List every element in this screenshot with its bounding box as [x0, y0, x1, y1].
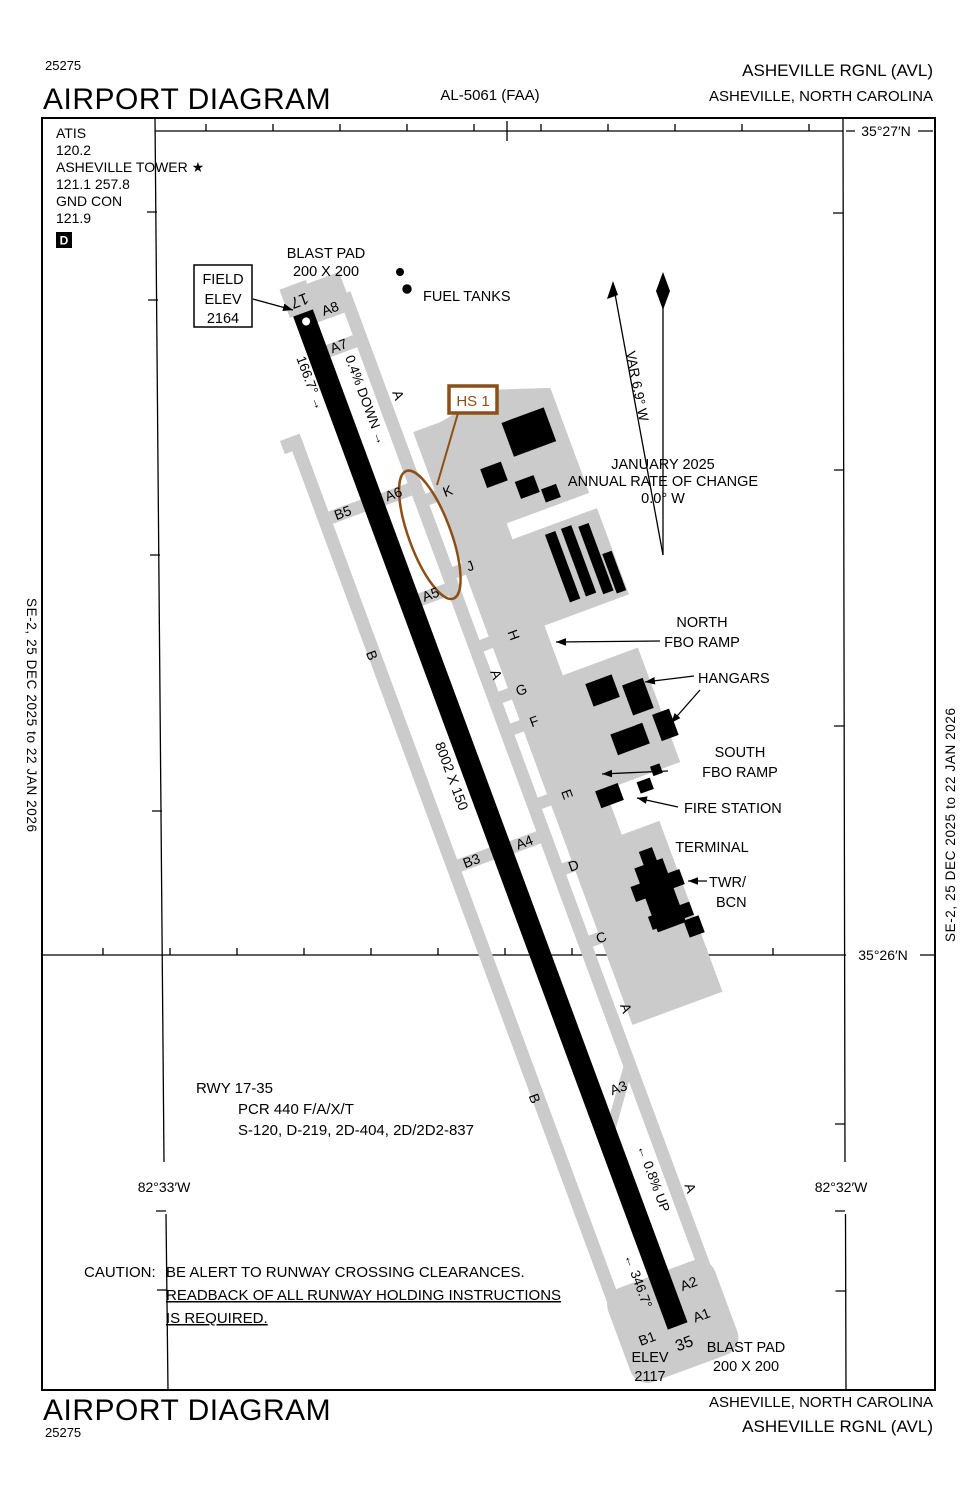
field-elev-line2: ELEV — [204, 292, 241, 308]
airport-city-top: ASHEVILLE, NORTH CAROLINA — [709, 88, 933, 105]
atis-freq: 120.2 — [56, 142, 91, 158]
field-elev-line1: FIELD — [202, 272, 243, 288]
airport-name-bottom: ASHEVILLE RGNL (AVL) — [742, 1417, 933, 1436]
lat-label-top: 35°27′N — [861, 123, 910, 139]
rwy-data-strength: S-120, D-219, 2D-404, 2D/2D2-837 — [238, 1122, 474, 1139]
lon-label-east: 82°32′W — [815, 1179, 868, 1195]
fuel-tanks-label: FUEL TANKS — [423, 289, 511, 305]
atis-label: ATIS — [56, 125, 86, 141]
north-fbo-label-1: NORTH — [676, 615, 727, 631]
twr-bcn-label-1: TWR/ — [709, 875, 747, 891]
hotspot-label: HS 1 — [456, 393, 489, 410]
airport-diagram-page: 25275 AIRPORT DIAGRAM AL-5061 (FAA) ASHE… — [0, 0, 978, 1500]
magvar-rate-value: 0.0° W — [641, 491, 685, 507]
rwy-data-pcr: PCR 440 F/A/X/T — [238, 1101, 354, 1118]
blast-pad-north-label-2: 200 X 200 — [293, 264, 359, 280]
terminal-label: TERMINAL — [675, 840, 748, 856]
tower-freq: 121.1 257.8 — [56, 176, 130, 192]
south-fbo-label-1: SOUTH — [715, 745, 766, 761]
chart-code-top: 25275 — [45, 58, 81, 73]
field-elev-value: 2164 — [207, 311, 239, 327]
airport-city-bottom: ASHEVILLE, NORTH CAROLINA — [709, 1394, 933, 1411]
hangars-label: HANGARS — [698, 671, 770, 687]
blast-pad-south-label-1: BLAST PAD — [707, 1340, 785, 1356]
diagram-canvas: 25275 AIRPORT DIAGRAM AL-5061 (FAA) ASHE… — [0, 0, 978, 1500]
datis-letter: D — [60, 234, 69, 248]
effective-date-right: SE-2, 25 DEC 2025 to 22 JAN 2026 — [943, 707, 958, 942]
chart-frame: 35°27′N 35°26′N 82°33′W 82°32′W — [42, 118, 935, 1390]
twr-bcn-label-2: BCN — [716, 895, 747, 911]
effective-date-left: SE-2, 25 DEC 2025 to 22 JAN 2026 — [24, 598, 39, 833]
north-fbo-label-2: FBO RAMP — [664, 635, 740, 651]
magvar-date: JANUARY 2025 — [611, 457, 714, 473]
footer: AIRPORT DIAGRAM 25275 ASHEVILLE, NORTH C… — [43, 1394, 933, 1440]
lat-label-mid: 35°26′N — [858, 947, 907, 963]
blast-pad-south-label-2: 200 X 200 — [713, 1359, 779, 1375]
caution-label: CAUTION: — [84, 1264, 156, 1281]
ground-freq: 121.9 — [56, 210, 91, 226]
tower-label: ASHEVILLE TOWER ★ — [56, 159, 204, 175]
header: 25275 AIRPORT DIAGRAM AL-5061 (FAA) ASHE… — [43, 58, 933, 116]
procedure-number: AL-5061 (FAA) — [440, 87, 539, 104]
map-border — [42, 118, 935, 1390]
fire-station-label: FIRE STATION — [684, 801, 782, 817]
rwy-data-title: RWY 17-35 — [196, 1080, 273, 1097]
fuel-tank-icon — [402, 284, 411, 293]
elev-35-value: 2117 — [634, 1369, 665, 1385]
caution-line-1: BE ALERT TO RUNWAY CROSSING CLEARANCES. — [166, 1264, 525, 1281]
elev-35-label: ELEV — [631, 1350, 668, 1366]
magvar-rate-label: ANNUAL RATE OF CHANGE — [568, 474, 758, 490]
lon-label-west: 82°33′W — [138, 1179, 191, 1195]
fuel-tank-icon — [396, 268, 404, 276]
blast-pad-north-label-1: BLAST PAD — [287, 246, 365, 262]
airport-name-top: ASHEVILLE RGNL (AVL) — [742, 61, 933, 80]
page-title-bottom: AIRPORT DIAGRAM — [43, 1394, 331, 1427]
chart-code-bottom: 25275 — [45, 1425, 81, 1440]
south-fbo-label-2: FBO RAMP — [702, 765, 778, 781]
caution-line-3: IS REQUIRED. — [166, 1310, 268, 1327]
ground-label: GND CON — [56, 193, 122, 209]
page-title: AIRPORT DIAGRAM — [43, 83, 331, 116]
caution-line-2: READBACK OF ALL RUNWAY HOLDING INSTRUCTI… — [166, 1287, 561, 1304]
